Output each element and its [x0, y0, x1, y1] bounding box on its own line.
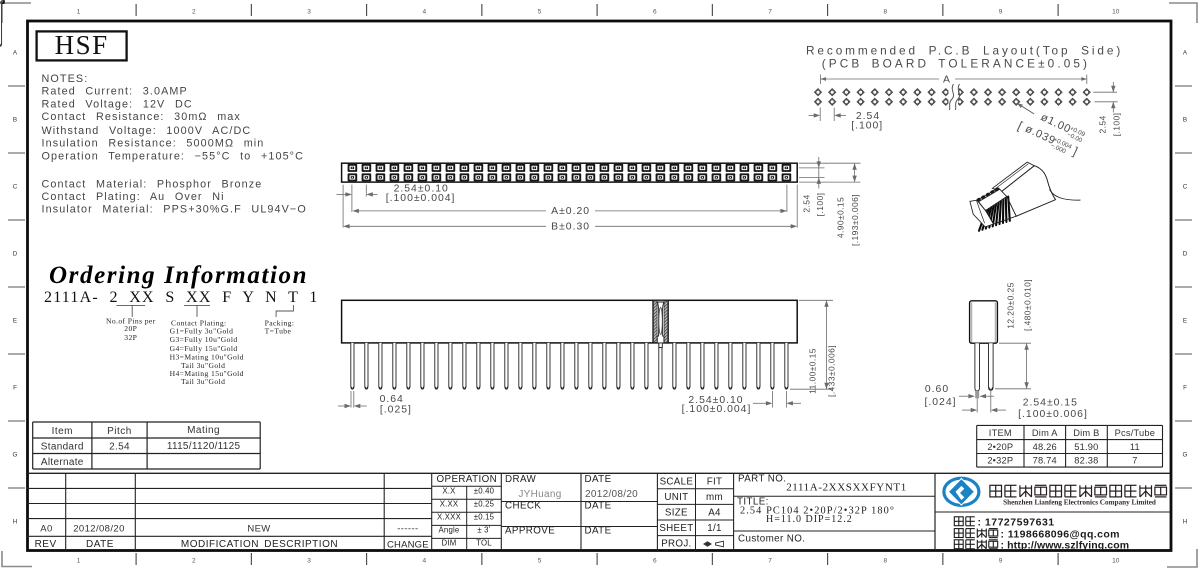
svg-text:G: G	[1183, 452, 1188, 459]
svg-text:0.60: 0.60	[925, 384, 949, 395]
svg-text:mm: mm	[706, 492, 723, 503]
svg-text:SIZE: SIZE	[665, 508, 688, 519]
svg-text:Angle: Angle	[439, 526, 460, 535]
svg-text:Dim A: Dim A	[1032, 428, 1058, 438]
svg-text:G: G	[13, 452, 18, 459]
svg-text:OPERATION: OPERATION	[437, 474, 498, 485]
svg-text:8: 8	[883, 558, 887, 565]
svg-text:[.100±0.004]: [.100±0.004]	[386, 193, 456, 204]
svg-text:X.XX: X.XX	[440, 499, 459, 508]
svg-text:2.54: 2.54	[802, 194, 812, 212]
svg-text:E: E	[1183, 318, 1187, 325]
svg-text:5: 5	[538, 9, 542, 16]
svg-text:PROJ.: PROJ.	[661, 539, 691, 550]
svg-text:[.433±0.006]: [.433±0.006]	[827, 345, 837, 397]
svg-text:12.20±0.25: 12.20±0.25	[1006, 282, 1016, 328]
svg-text:REV: REV	[35, 539, 57, 550]
svg-text:(PCB BOARD TOLERANCE±0.05): (PCB BOARD TOLERANCE±0.05)	[822, 56, 1090, 70]
svg-text:4: 4	[422, 9, 426, 16]
svg-text:: 17727597631: : 17727597631	[978, 517, 1055, 529]
svg-text:A±0.20: A±0.20	[551, 206, 590, 217]
svg-text:2111A-2XXSXXFYNT1: 2111A-2XXSXXFYNT1	[786, 482, 907, 494]
svg-text:[.193±0.006]: [.193±0.006]	[850, 194, 860, 246]
svg-text:H: H	[1183, 519, 1188, 526]
svg-text:B±0.30: B±0.30	[551, 222, 590, 233]
svg-text:[.100]: [.100]	[851, 121, 883, 132]
svg-text:B: B	[13, 117, 17, 124]
svg-text:2012/08/20: 2012/08/20	[73, 524, 125, 535]
svg-text:7: 7	[768, 9, 772, 16]
svg-text:Contact Plating: Au Over Ni: Contact Plating: Au Over Ni	[42, 191, 225, 203]
svg-text:CHANGE: CHANGE	[387, 539, 429, 550]
svg-text:Dim B: Dim B	[1073, 428, 1099, 438]
svg-text:1/1: 1/1	[707, 523, 722, 534]
svg-text:NOTES:: NOTES:	[42, 73, 89, 85]
svg-text:3: 3	[307, 558, 311, 565]
svg-text:[.480±0.010]: [.480±0.010]	[1022, 279, 1032, 331]
svg-text:9: 9	[999, 558, 1003, 565]
svg-text:HSF: HSF	[55, 30, 109, 60]
svg-text:8: 8	[883, 9, 887, 16]
svg-text:SHEET: SHEET	[659, 523, 693, 534]
svg-text:NEW: NEW	[247, 524, 270, 535]
svg-text:2•32P: 2•32P	[987, 456, 1013, 466]
svg-text:Item: Item	[52, 426, 73, 437]
svg-text:48.26: 48.26	[1033, 442, 1057, 452]
svg-text:[.025]: [.025]	[380, 405, 412, 416]
svg-text:Standard: Standard	[41, 441, 84, 452]
svg-text:[.100±0.004]: [.100±0.004]	[682, 404, 752, 415]
svg-text:[.024]: [.024]	[925, 397, 957, 408]
svg-text:DATE: DATE	[585, 526, 612, 537]
svg-text:78.74: 78.74	[1033, 456, 1057, 466]
svg-text:Tail 3u"Gold: Tail 3u"Gold	[181, 377, 225, 386]
svg-text:E: E	[13, 318, 17, 325]
svg-text:D: D	[1183, 251, 1188, 258]
svg-text:D: D	[13, 251, 18, 258]
svg-text:ITEM: ITEM	[989, 428, 1012, 438]
svg-text:2: 2	[192, 9, 196, 16]
svg-text:6: 6	[653, 558, 657, 565]
svg-text:A: A	[13, 50, 18, 57]
svg-text:A: A	[1183, 50, 1188, 57]
svg-text:4: 4	[422, 558, 426, 565]
svg-text:DATE: DATE	[585, 501, 612, 512]
svg-text:2.54±0.15: 2.54±0.15	[1023, 398, 1078, 409]
svg-text:1: 1	[77, 558, 81, 565]
svg-text:7: 7	[1132, 456, 1137, 466]
svg-text:TOL: TOL	[476, 539, 492, 548]
svg-text:H=11.0 DIP=12.2: H=11.0 DIP=12.2	[766, 514, 853, 525]
svg-text:F: F	[13, 385, 17, 392]
svg-text:DRAW: DRAW	[505, 474, 537, 485]
svg-text:MODIFICATION DESCRIPTION: MODIFICATION DESCRIPTION	[181, 539, 338, 550]
svg-text:[.100±0.006]: [.100±0.006]	[1018, 409, 1088, 420]
svg-text:Rated Voltage: 12V DC: Rated Voltage: 12V DC	[42, 98, 193, 110]
svg-text:2012/08/20: 2012/08/20	[585, 489, 638, 500]
svg-text:2.54: 2.54	[109, 441, 130, 452]
svg-text:X.XXX: X.XXX	[437, 513, 462, 522]
svg-text:B: B	[1183, 117, 1187, 124]
svg-text:C: C	[13, 184, 18, 191]
svg-text:Insulator Material: PPS+30%G.F: Insulator Material: PPS+30%G.F UL94V−O	[42, 204, 307, 216]
svg-text:Ordering Information: Ordering Information	[49, 262, 308, 289]
svg-text:1115/1120/1125: 1115/1120/1125	[167, 441, 241, 452]
svg-text:Alternate: Alternate	[41, 457, 84, 468]
svg-text:Contact Material: Phosphor Bro: Contact Material: Phosphor Bronze	[42, 179, 263, 191]
svg-text:Operation Temperature: −55°C t: Operation Temperature: −55°C to +105°C	[42, 150, 305, 162]
svg-text:2•20P: 2•20P	[987, 442, 1013, 452]
svg-text:A4: A4	[708, 508, 721, 519]
svg-text:PART NO.: PART NO.	[738, 473, 786, 484]
svg-text:C: C	[1183, 184, 1188, 191]
svg-text:]: ]	[1071, 144, 1080, 158]
svg-text:82.38: 82.38	[1074, 456, 1098, 466]
svg-text:X.X: X.X	[442, 486, 456, 495]
svg-text:Customer NO.: Customer NO.	[738, 534, 805, 545]
svg-text:Insulation Resistance: 5000MΩ: Insulation Resistance: 5000MΩ min	[42, 138, 265, 150]
svg-text:5: 5	[538, 558, 542, 565]
svg-text:DIM: DIM	[442, 539, 457, 548]
svg-text:APPROVE: APPROVE	[505, 526, 555, 537]
svg-text:6: 6	[653, 9, 657, 16]
svg-text:9: 9	[999, 9, 1003, 16]
svg-text:11.00±0.15: 11.00±0.15	[808, 348, 818, 394]
svg-text:10: 10	[1112, 558, 1120, 565]
svg-text:10: 10	[1112, 9, 1120, 16]
svg-text:Mating: Mating	[187, 425, 220, 436]
svg-text:T=Tube: T=Tube	[265, 327, 292, 336]
svg-text:SCALE: SCALE	[660, 476, 694, 487]
svg-text:7: 7	[768, 558, 772, 565]
svg-text:F: F	[1183, 385, 1187, 392]
svg-text:±0.15: ±0.15	[474, 513, 495, 522]
svg-text:A0: A0	[40, 524, 52, 535]
svg-text:Shenzhen Lianfeng Electronics: Shenzhen Lianfeng Electronics Company Li…	[1003, 499, 1156, 507]
svg-text:4.90±0.15: 4.90±0.15	[836, 197, 846, 238]
svg-text:11: 11	[1130, 442, 1140, 452]
svg-text:FIT: FIT	[707, 476, 723, 487]
svg-text:± 3ʼ: ± 3ʼ	[477, 526, 490, 535]
svg-text:[.100]: [.100]	[1112, 113, 1122, 137]
svg-text:UNIT: UNIT	[664, 492, 688, 503]
svg-text:2.54: 2.54	[1098, 115, 1108, 133]
svg-text:1: 1	[77, 9, 81, 16]
svg-text:Rated Current: 3.0AMP: Rated Current: 3.0AMP	[42, 86, 188, 98]
svg-text:CHECK: CHECK	[505, 501, 541, 512]
svg-text:Contact Resistance: 30mΩ max: Contact Resistance: 30mΩ max	[42, 111, 241, 123]
svg-text:------: ------	[397, 524, 418, 535]
svg-text:32P: 32P	[124, 333, 137, 342]
svg-text:[.100]: [.100]	[815, 193, 825, 217]
svg-text:G3=Fully 10u"Gold: G3=Fully 10u"Gold	[170, 335, 238, 344]
svg-text:±0.25: ±0.25	[474, 499, 495, 508]
svg-text:Withstand Voltage: 1000V AC/DC: Withstand Voltage: 1000V AC/DC	[42, 125, 252, 137]
svg-text:2111A- 2 XX S XX F Y N T 1: 2111A- 2 XX S XX F Y N T 1	[44, 289, 319, 306]
svg-text:Pitch: Pitch	[107, 426, 132, 437]
svg-text:51.90: 51.90	[1074, 442, 1098, 452]
svg-text:±0.40: ±0.40	[474, 486, 495, 495]
svg-text:Pcs/Tube: Pcs/Tube	[1115, 428, 1156, 438]
svg-text:3: 3	[307, 9, 311, 16]
svg-text:2: 2	[192, 558, 196, 565]
svg-text:: http://www.szlfying.com: : http://www.szlfying.com	[1001, 539, 1130, 551]
svg-text:DATE: DATE	[86, 539, 114, 550]
svg-text:DATE: DATE	[585, 474, 612, 485]
svg-text:JYHuang: JYHuang	[518, 489, 561, 500]
svg-text:A: A	[943, 74, 951, 85]
svg-text:H: H	[13, 519, 18, 526]
